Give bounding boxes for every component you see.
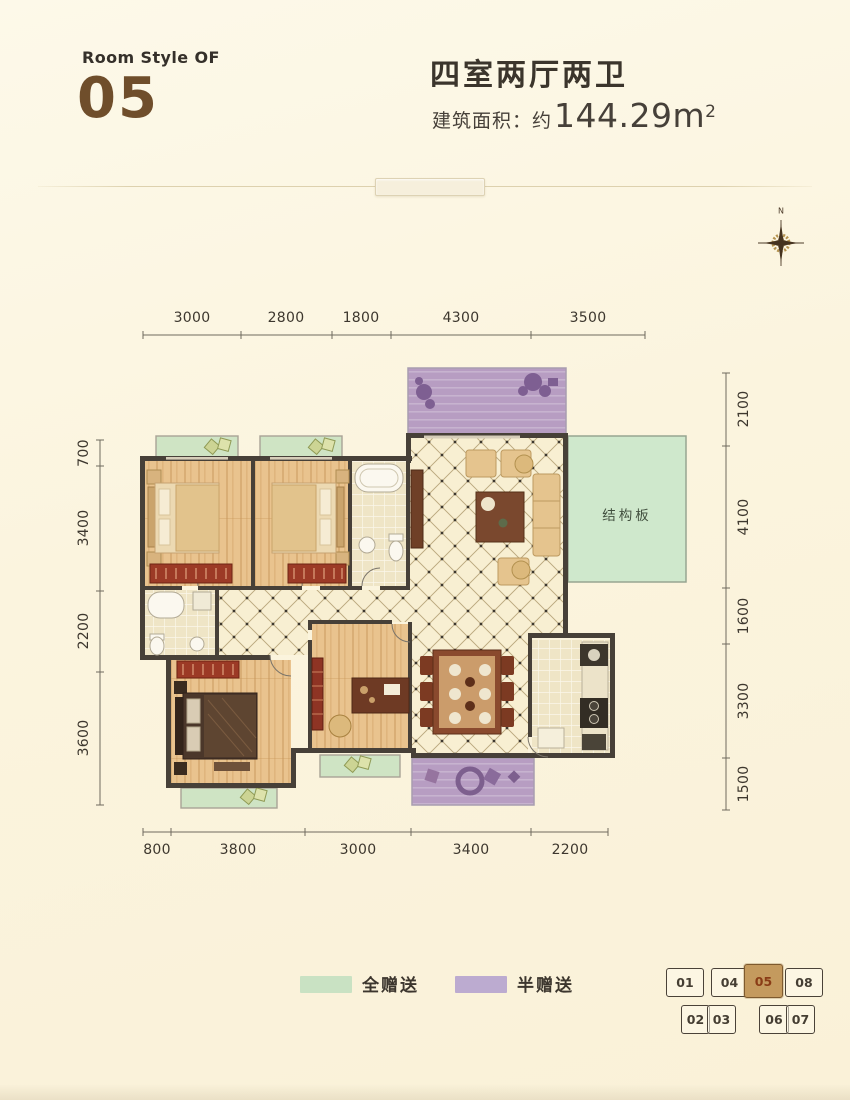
dimension-label: 3000 [174, 310, 211, 326]
dimension-label: 1500 [736, 766, 752, 803]
floor-plan [0, 0, 850, 1100]
structural-slab-label: 结构板 [602, 504, 652, 524]
legend-swatch-half-gift [455, 976, 507, 993]
dimension-label: 3600 [76, 720, 92, 757]
dimension-label: 2100 [736, 391, 752, 428]
dimension-label: 1800 [343, 310, 380, 326]
dimension-label: 1600 [736, 598, 752, 635]
unit-07: 07 [786, 1005, 815, 1034]
dimension-label: 3400 [76, 510, 92, 547]
dimension-label: 3500 [570, 310, 607, 326]
floorplan-page: Room Style OF 05 四室两厅两卫 建筑面积： 约 144.29m … [0, 0, 850, 1100]
dimension-label: 4300 [443, 310, 480, 326]
dimension-label: 3000 [340, 842, 377, 858]
unit-04: 04 [711, 968, 748, 997]
legend-swatch-full-gift [300, 976, 352, 993]
dimension-label: 2200 [76, 613, 92, 650]
dimension-label: 3800 [220, 842, 257, 858]
legend-label-full-gift: 全赠送 [362, 971, 419, 996]
dimension-label: 2200 [552, 842, 589, 858]
dimension-label: 4100 [736, 499, 752, 536]
unit-08: 08 [785, 968, 823, 997]
unit-02: 02 [681, 1005, 710, 1034]
unit-05-highlighted: 05 [744, 964, 783, 998]
dimension-label: 700 [76, 439, 92, 467]
unit-01: 01 [666, 968, 704, 997]
legend-label-half-gift: 半赠送 [517, 971, 574, 996]
bedroom1-furniture [147, 470, 232, 583]
dimension-label: 800 [143, 842, 171, 858]
dining-furniture [420, 650, 514, 734]
unit-03: 03 [707, 1005, 736, 1034]
dimension-label: 3300 [736, 683, 752, 720]
unit-06: 06 [759, 1005, 789, 1034]
dimension-label: 3400 [453, 842, 490, 858]
dimension-label: 2800 [268, 310, 305, 326]
